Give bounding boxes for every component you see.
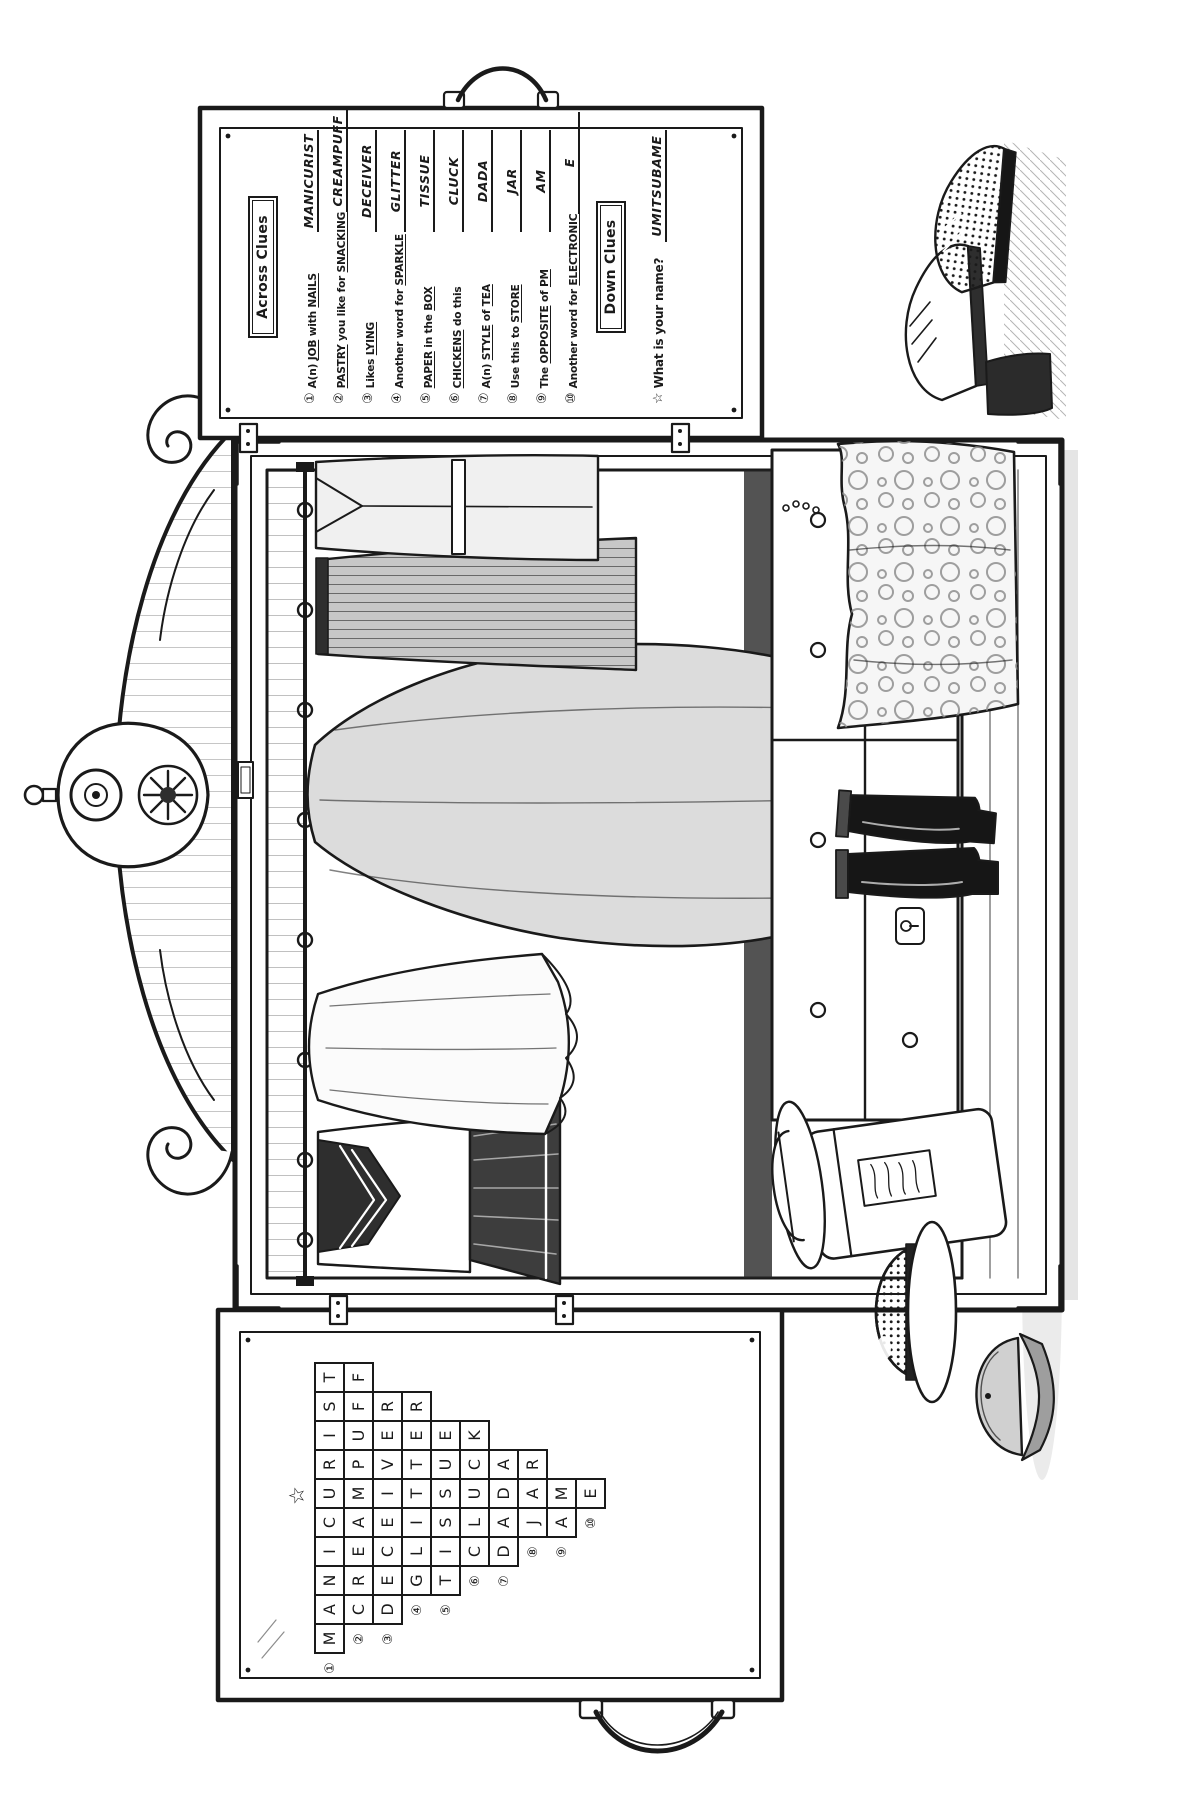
grid-cell: E [430, 1420, 461, 1451]
grid-cell: C [314, 1507, 345, 1538]
grid-cell: I [430, 1536, 461, 1567]
across-clues-title: Across Clues [252, 200, 274, 334]
clue-number: ⑥ [448, 392, 464, 404]
left-door-handle [580, 1700, 734, 1751]
grid-cell: M [343, 1478, 374, 1509]
grid-cell: U [314, 1478, 345, 1509]
clue-text: The OPPOSITE of PM [539, 232, 551, 388]
down-clues-section: Down Clues ☆What is your name?UMITSUBAME [596, 130, 667, 404]
clue-answer: AM [533, 130, 551, 232]
grid-cell: R [372, 1391, 403, 1422]
grid-cell: M [546, 1478, 577, 1509]
grid-cell: E [575, 1478, 606, 1509]
grid-cell: E [372, 1507, 403, 1538]
star-icon: ☆ [287, 1486, 308, 1505]
clue-number: ⑩ [564, 392, 580, 404]
clue-text: Likes LYING [365, 232, 377, 388]
clue-answer: MANICURIST [301, 130, 319, 232]
clue-number: ② [332, 392, 348, 404]
grid-cell: I [314, 1420, 345, 1451]
crossword-sheet: ☆①MANICURIST②CREAMPUFF③DECEIVER④GLITTER⑤… [218, 1310, 782, 1700]
clue-answer: DECEIVER [359, 130, 377, 232]
nameplate [238, 762, 253, 798]
across-clue-row: ⑧Use this to STOREJAR [493, 130, 522, 404]
manga-page: Across Clues ①A(n) JOB with NAILSMANICUR… [0, 0, 1200, 1800]
grid-row-number: ⑨ [552, 1542, 572, 1562]
grid-cell: P [343, 1449, 374, 1480]
clue-number: ☆ [651, 392, 667, 404]
grid-cell: T [314, 1362, 345, 1393]
hatbox-label [858, 1150, 936, 1206]
grid-cell: S [314, 1391, 345, 1422]
clue-text: Another word for SPARKLE [394, 232, 406, 388]
grid-cell: I [372, 1478, 403, 1509]
grid-cell: L [401, 1536, 432, 1567]
grid-cell: S [430, 1478, 461, 1509]
clue-text: Another word for ELECTRONIC [568, 214, 580, 389]
down-clues-title-box: Down Clues [596, 201, 626, 334]
grid-cell: T [401, 1478, 432, 1509]
grid-cell: F [343, 1391, 374, 1422]
grid-cell: I [314, 1536, 345, 1567]
trunk-crown [25, 396, 233, 1194]
grid-cell: D [488, 1478, 519, 1509]
grid-cell: C [372, 1536, 403, 1567]
grid-cell: R [343, 1565, 374, 1596]
crest-flower-medallion [139, 766, 197, 824]
grid-cell: U [430, 1449, 461, 1480]
grid-row-number: ⑥ [465, 1571, 485, 1591]
grid-cell: N [314, 1565, 345, 1596]
across-clue-row: ⑦A(n) STYLE of TEADADA [464, 130, 493, 404]
grid-cell: R [314, 1449, 345, 1480]
clue-number: ① [303, 392, 319, 404]
grid-cell: L [459, 1507, 490, 1538]
across-clue-row: ①A(n) JOB with NAILSMANICURIST [290, 130, 319, 404]
clue-answer: DADA [475, 130, 493, 232]
floral-kimono-cloth [838, 441, 1018, 728]
grid-row-number: ④ [407, 1600, 427, 1620]
grid-cell: G [401, 1565, 432, 1596]
down-clue-row: ☆What is your name?UMITSUBAME [638, 130, 667, 404]
hatbox [804, 1107, 1008, 1260]
across-clues-list: ①A(n) JOB with NAILSMANICURIST②PASTRY yo… [290, 130, 580, 404]
clue-answer: TISSUE [417, 130, 435, 232]
boot-left [836, 848, 998, 898]
clue-sheet: Across Clues ①A(n) JOB with NAILSMANICUR… [206, 120, 758, 416]
clue-number: ⑨ [535, 392, 551, 404]
clue-number: ④ [390, 392, 406, 404]
grid-cell: T [430, 1565, 461, 1596]
grid-cell: E [401, 1420, 432, 1451]
across-clue-row: ④Another word for SPARKLEGLITTER [377, 130, 406, 404]
clue-text: A(n) JOB with NAILS [307, 232, 319, 388]
right-door-handle [444, 69, 558, 109]
clue-text: Use this to STORE [510, 232, 522, 388]
grid-cell: C [459, 1449, 490, 1480]
clue-answer: GLITTER [388, 130, 406, 232]
long-coat [316, 455, 598, 560]
grid-row-number: ① [320, 1658, 340, 1678]
grid-cell: I [401, 1507, 432, 1538]
across-clue-row: ⑩Another word for ELECTRONICE [551, 130, 580, 404]
grid-cell: A [488, 1449, 519, 1480]
across-clue-row: ⑤PAPER in the BOXTISSUE [406, 130, 435, 404]
clue-text: CHICKENS do this [452, 232, 464, 388]
across-clue-row: ⑨The OPPOSITE of PMAM [522, 130, 551, 404]
across-clue-row: ②PASTRY you like for SNACKINGCREAMPUFF [319, 130, 348, 404]
crossword-grid: ☆①MANICURIST②CREAMPUFF③DECEIVER④GLITTER⑤… [314, 1324, 634, 1654]
grid-cell: U [459, 1478, 490, 1509]
across-clue-row: ③Likes LYINGDECEIVER [348, 130, 377, 404]
grid-row-number: ⑤ [436, 1600, 456, 1620]
clue-text: A(n) STYLE of TEA [481, 232, 493, 388]
clue-answer: CLUCK [446, 130, 464, 232]
grid-cell: R [401, 1391, 432, 1422]
clue-answer: CREAMPUFF [330, 110, 348, 212]
grid-cell: D [372, 1594, 403, 1625]
grid-cell: E [343, 1536, 374, 1567]
grid-cell: F [343, 1362, 374, 1393]
grid-row-number: ⑧ [523, 1542, 543, 1562]
clue-number: ③ [361, 392, 377, 404]
rotated-page: Across Clues ①A(n) JOB with NAILSMANICUR… [0, 0, 1200, 1800]
grid-row-number: ② [349, 1629, 369, 1649]
grid-cell: C [343, 1594, 374, 1625]
grid-cell: J [517, 1507, 548, 1538]
across-clues-title-box: Across Clues [248, 196, 278, 338]
grid-cell: A [546, 1507, 577, 1538]
grid-cell: K [459, 1420, 490, 1451]
clue-text: What is your name? [653, 242, 667, 388]
clue-answer: JAR [504, 130, 522, 232]
grid-row-number: ⑦ [494, 1571, 514, 1591]
grid-cell: A [314, 1594, 345, 1625]
across-clue-row: ⑥CHICKENS do thisCLUCK [435, 130, 464, 404]
grid-row-number: ⑩ [581, 1513, 601, 1533]
grid-cell: T [401, 1449, 432, 1480]
flat-cap [976, 1334, 1053, 1460]
crown-finial [25, 786, 56, 804]
grid-cell: D [488, 1536, 519, 1567]
grid-cell: A [488, 1507, 519, 1538]
grid-cell: E [372, 1420, 403, 1451]
clue-answer: UMITSUBAME [649, 130, 667, 242]
clue-number: ⑤ [419, 392, 435, 404]
clue-answer: E [562, 112, 580, 214]
clue-text: PASTRY you like for SNACKING [336, 212, 348, 389]
clue-text: PAPER in the BOX [423, 232, 435, 388]
grid-cell: E [372, 1565, 403, 1596]
grid-cell: A [517, 1478, 548, 1509]
grid-cell: S [430, 1507, 461, 1538]
grid-cell: C [459, 1536, 490, 1567]
down-clues-title: Down Clues [600, 205, 622, 330]
keyhole-plate [896, 908, 924, 944]
grid-cell: V [372, 1449, 403, 1480]
clue-number: ⑦ [477, 392, 493, 404]
clue-number: ⑧ [506, 392, 522, 404]
grid-cell: U [343, 1420, 374, 1451]
grid-cell: A [343, 1507, 374, 1538]
grid-cell: M [314, 1623, 345, 1654]
grid-cell: R [517, 1449, 548, 1480]
ankle-boot [986, 353, 1052, 414]
grid-row-number: ③ [378, 1629, 398, 1649]
down-clues-list: ☆What is your name?UMITSUBAME [638, 130, 667, 404]
